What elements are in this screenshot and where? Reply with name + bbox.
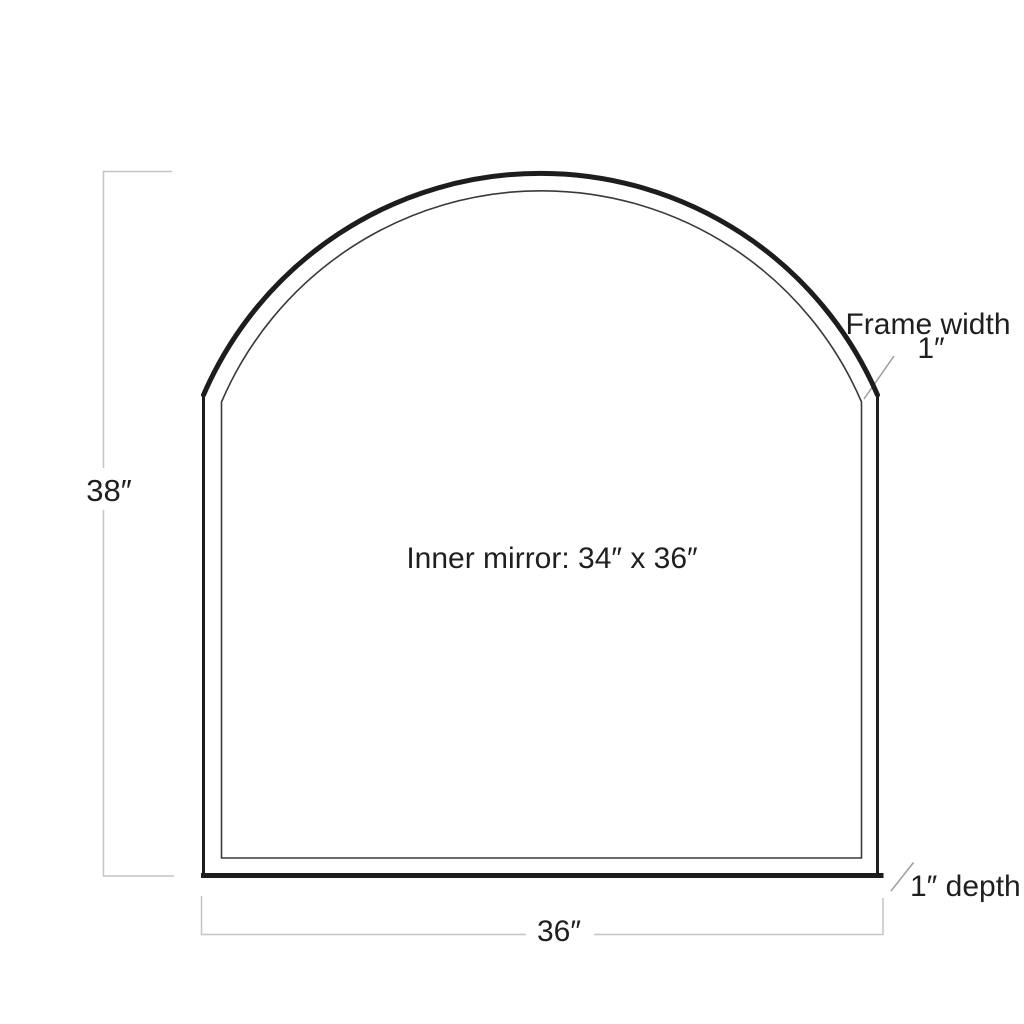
mirror-outer-frame [204, 173, 878, 876]
height-dimension-bracket [104, 172, 175, 877]
diagram-canvas: 38″ 36″ Inner mirror: 34″ x 36″ Frame wi… [0, 0, 1024, 1024]
depth-label: 1″ depth [910, 870, 1021, 903]
frame-width-label-line2: 1″ [917, 332, 945, 365]
inner-mirror-size-label: Inner mirror: 34″ x 36″ [406, 542, 698, 575]
mirror-dimension-diagram: 38″ 36″ Inner mirror: 34″ x 36″ Frame wi… [0, 0, 1024, 1024]
height-dimension-label: 38″ [86, 473, 131, 508]
width-dimension-label: 36″ [537, 915, 581, 948]
